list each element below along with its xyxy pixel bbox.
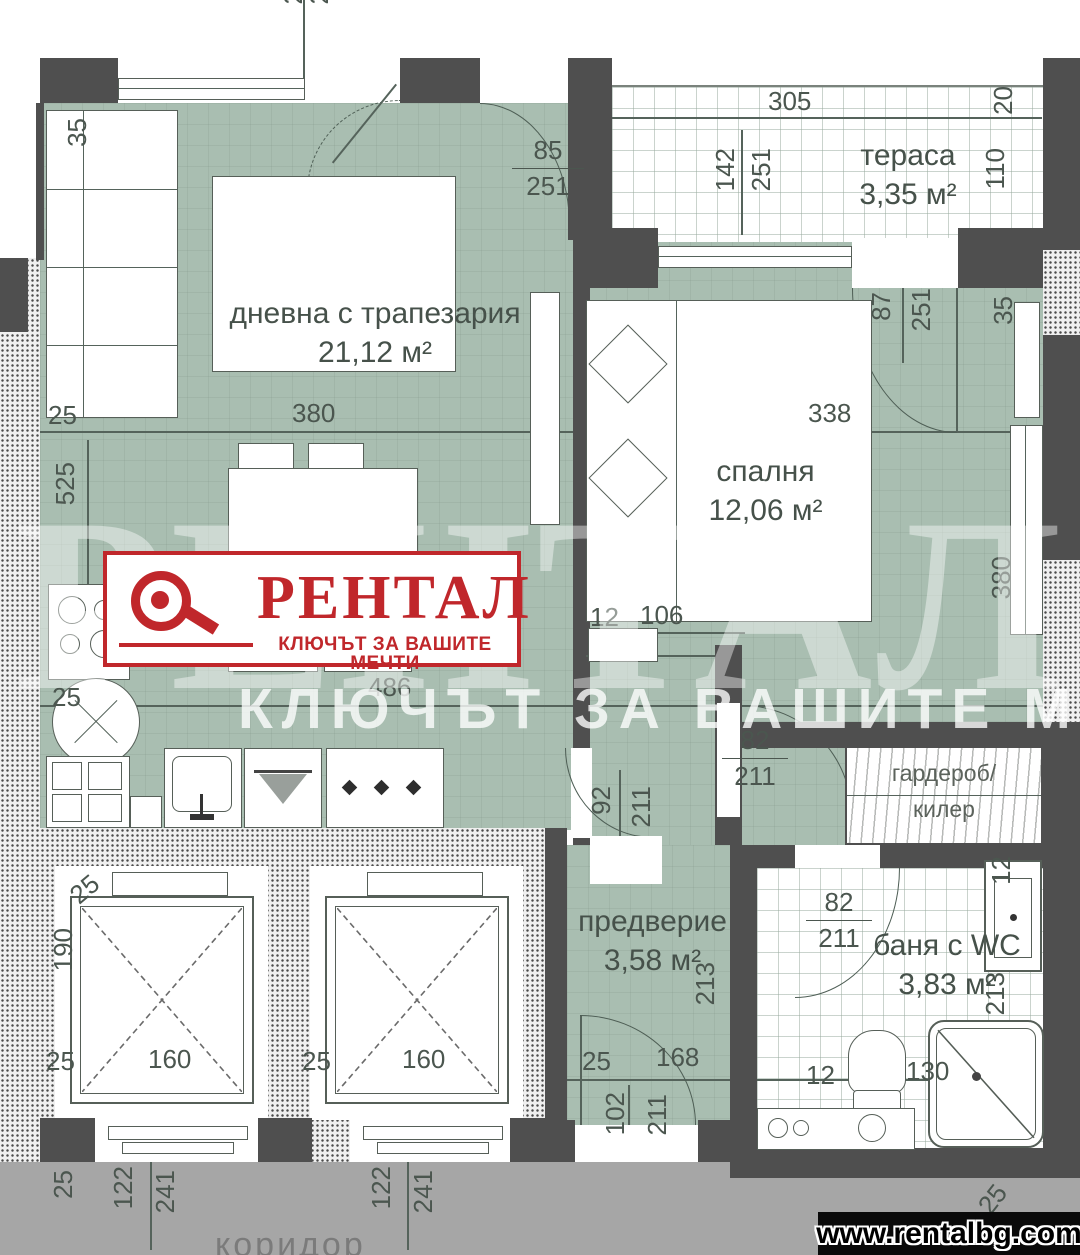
- cabinet-door: [88, 762, 122, 790]
- dim-bedroom-height: 380: [988, 556, 1014, 599]
- elevator-counterweight: [367, 872, 483, 896]
- room-name: предверие: [570, 902, 735, 941]
- nightstand: [588, 628, 658, 662]
- wall-hatched: [1043, 250, 1080, 335]
- wall-segment: [40, 1118, 95, 1162]
- window: [658, 246, 852, 268]
- logo-wordmark: РЕНТАЛ: [257, 567, 513, 629]
- dim-line: [741, 130, 743, 235]
- rental-key-icon: [117, 565, 257, 661]
- wall-segment: [545, 828, 567, 1120]
- window-pane-line: [659, 256, 851, 257]
- wall-segment: [258, 1118, 312, 1162]
- wall-segment: [757, 845, 795, 868]
- cabinet-door: [52, 762, 82, 790]
- wall-segment: [698, 1120, 730, 1162]
- wall-segment: [0, 258, 28, 332]
- wall-segment: [400, 58, 480, 103]
- room-area: 3,83 м²: [862, 965, 1032, 1004]
- room-name: баня с WC: [862, 926, 1032, 965]
- dim-bath-door-w: 82: [806, 888, 872, 921]
- dim-bed-b: 106: [640, 602, 683, 628]
- dim-entry-door-w: 102: [602, 1092, 628, 1135]
- sofa-cushion-line: [83, 111, 84, 417]
- cabinet-door: [52, 794, 82, 822]
- room-area: 12,06 м²: [678, 491, 853, 530]
- dim-offset: 25: [52, 684, 81, 710]
- dim-balcony-door: 85 251: [512, 136, 584, 200]
- room-label-bath: баня с WC 3,83 м²: [862, 926, 1032, 1004]
- wall-segment: [730, 845, 757, 1148]
- wall-segment: [585, 228, 658, 288]
- sink-bowl: [793, 1120, 809, 1136]
- dining-chair: [238, 443, 294, 469]
- wall-segment: [1043, 58, 1080, 250]
- dim-bed-a: 12: [590, 604, 619, 630]
- cabinet-door: [88, 794, 122, 822]
- wall-segment: [510, 1118, 548, 1162]
- key-dot-icon: [151, 591, 169, 609]
- sink-bowl: [768, 1118, 788, 1138]
- dim-bedroom-door: 82 211: [722, 726, 788, 790]
- wall-segment: [730, 1148, 1080, 1178]
- room-area: 3,35 м²: [828, 175, 988, 214]
- hood-icon: [254, 770, 312, 773]
- dining-chair: [308, 443, 364, 469]
- wall-segment: [545, 1120, 575, 1162]
- shower-drain-icon: [972, 1072, 981, 1081]
- dim-balcony-door-w: 85: [512, 136, 584, 169]
- dim-line: [612, 117, 1042, 119]
- dim-elev1-door-b: 241: [152, 1170, 178, 1213]
- dim-elev1-off: 25: [46, 1048, 75, 1074]
- website-url: www.rentalbg.com: [816, 1217, 1080, 1251]
- door-opening: [852, 238, 958, 288]
- dim-elev2-off: 25: [302, 1048, 331, 1074]
- door-opening: [590, 836, 662, 884]
- dim-cut: 2: [306, 0, 332, 4]
- dim-terrace-v1: 142: [712, 148, 738, 191]
- dim-bath-a: 12: [806, 1062, 835, 1088]
- dim-living-height: 525: [52, 462, 78, 505]
- room-label-terrace: тераса 3,35 м²: [828, 136, 988, 214]
- elevator-door-area-2: [350, 1118, 510, 1162]
- elevator-door-area-1: [95, 1118, 258, 1162]
- washing-machine-knob-icon: [1010, 914, 1017, 921]
- door-opening: [795, 845, 880, 868]
- dim-bedroom-door-h: 211: [722, 762, 788, 791]
- dim-elev2-door-b: 241: [410, 1170, 436, 1213]
- dim-elev2-width: 160: [402, 1046, 445, 1072]
- room-label-bedroom: спалня 12,06 м²: [678, 452, 853, 530]
- sofa: [46, 110, 178, 418]
- window: [118, 78, 305, 100]
- sink-faucet-icon: [190, 814, 214, 820]
- wardrobe-label-line1: гардероб/: [845, 756, 1043, 792]
- dim-kitchen-width: 486: [368, 674, 411, 700]
- logo-tagline: КЛЮЧЪТ ЗА ВАШИТЕ МЕЧТИ: [257, 635, 513, 673]
- room-area: 3,58 м²: [570, 941, 735, 980]
- dim-elev1-width: 160: [148, 1046, 191, 1072]
- dim-offset: 25: [48, 402, 77, 428]
- wall-hatched-left: [0, 258, 40, 1162]
- dim-corner-bl: 25: [50, 1170, 76, 1199]
- dim-bath-b: 130: [906, 1058, 949, 1084]
- wall-segment: [958, 228, 1043, 288]
- window-pane-line: [1025, 426, 1026, 634]
- hood-icon: [259, 774, 307, 804]
- wall-hatched: [1043, 560, 1080, 735]
- kitchen-small-unit: [130, 796, 162, 828]
- room-label-corridor: коридор: [215, 1226, 366, 1255]
- door-opening: [575, 1125, 698, 1162]
- dim-elev2-door-a: 122: [368, 1166, 394, 1209]
- room-name: спалня: [678, 452, 853, 491]
- room-label-entry: предверие 3,58 м²: [570, 902, 735, 980]
- dim-bedroom-door-w: 82: [722, 726, 788, 759]
- dim-entry-door-h: 211: [644, 1094, 670, 1135]
- wardrobe-label: гардероб/ килер: [845, 756, 1043, 827]
- key-underline: [119, 643, 253, 647]
- shower-diagonal-icon: [936, 1028, 1036, 1140]
- dim-entry-width: 168: [656, 1044, 699, 1070]
- dim-entry-off: 25: [582, 1048, 611, 1074]
- dim-terrace-door-w: 87: [868, 292, 894, 321]
- elevator-counterweight: [112, 872, 228, 896]
- elevator-door-1: [108, 1126, 248, 1140]
- wall-segment: [742, 722, 1080, 748]
- room-name: дневна с трапезария: [205, 294, 545, 333]
- dim-terrace-width: 305: [768, 88, 811, 114]
- window: [1010, 425, 1043, 635]
- room-label-living: дневна с трапезария 21,12 м²: [205, 294, 545, 372]
- dim-living-door-h: 211: [628, 786, 654, 827]
- dim-wall-top-left: 35: [64, 118, 90, 147]
- rental-logo: РЕНТАЛ КЛЮЧЪТ ЗА ВАШИТЕ МЕЧТИ: [103, 551, 521, 667]
- toilet: [848, 1030, 906, 1094]
- dim-cut: 2: [280, 0, 306, 4]
- sofa-cushion-line: [47, 345, 177, 346]
- wardrobe-label-line2: килер: [845, 792, 1043, 828]
- elevator-door-1: [122, 1142, 234, 1154]
- stove-burner: [58, 596, 86, 624]
- wall-segment: [40, 58, 118, 103]
- room-area: 21,12 м²: [205, 333, 545, 372]
- window-pane-line: [119, 88, 304, 89]
- dim-terrace-v2: 251: [748, 148, 774, 191]
- wall-segment: [36, 103, 44, 260]
- sink-bowl: [858, 1114, 886, 1142]
- elevator-door-2: [377, 1142, 489, 1154]
- dim-balcony-door-h: 251: [512, 172, 584, 201]
- dim-line: [303, 0, 305, 85]
- dim-living-width: 380: [292, 400, 335, 426]
- sofa-cushion-line: [47, 189, 177, 190]
- dim-bedroom-width: 338: [808, 400, 851, 426]
- stove-burner: [60, 634, 80, 654]
- sofa-cushion-line: [47, 267, 177, 268]
- dim-living-door-w: 92: [588, 786, 614, 815]
- website-bar: www.rentalbg.com: [818, 1212, 1080, 1255]
- elevator-door-2: [363, 1126, 503, 1140]
- floor-plan: гардероб/ килер 2 2 305 20 142 251 110 8…: [0, 0, 1080, 1255]
- wall-segment: [1043, 335, 1080, 560]
- dim-wall-top-right: 35: [990, 296, 1016, 325]
- dim-terrace-door-h: 251: [908, 288, 934, 331]
- dim-elev-height: 190: [50, 928, 76, 971]
- dim-elev1-door-a: 122: [110, 1166, 136, 1209]
- dim-washer: 12: [988, 856, 1014, 885]
- dim-terrace-end: 20: [990, 86, 1016, 115]
- wall-segment: [1043, 735, 1080, 1178]
- room-name: тераса: [828, 136, 988, 175]
- dim-line: [40, 705, 1080, 707]
